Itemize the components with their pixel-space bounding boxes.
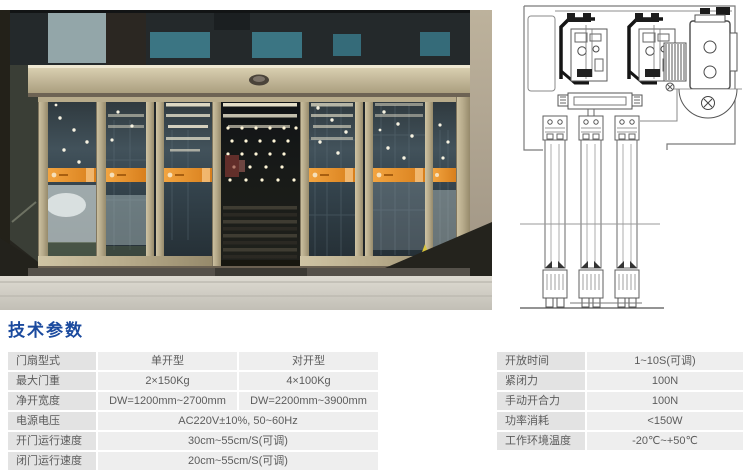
- spec-label: 工作环境温度: [497, 432, 585, 450]
- spec-value: 100N: [587, 372, 743, 390]
- spec-value: 100N: [587, 392, 743, 410]
- spec-value: 30cm~55cm/S(可调): [98, 432, 378, 450]
- spec-label: 最大门重: [8, 372, 96, 390]
- table-row: 开放时间 1~10S(可调): [497, 352, 743, 370]
- table-row: 手动开合力 100N: [497, 392, 743, 410]
- spec-label: 紧闭力: [497, 372, 585, 390]
- spec-value: DW=2200mm~3900mm: [239, 392, 378, 410]
- mechanism-diagram-svg: [514, 3, 746, 321]
- spec-label: 电源电压: [8, 412, 96, 430]
- door-profile-2: [579, 116, 603, 307]
- table-row: 工作环境温度 -20℃~+50℃: [497, 432, 743, 450]
- spec-value: 20cm~55cm/S(可调): [98, 452, 378, 470]
- spec-label: 功率消耗: [497, 412, 585, 430]
- table-row: 净开宽度 DW=1200mm~2700mm DW=2200mm~3900mm: [8, 392, 378, 410]
- floor-line: [520, 303, 664, 308]
- entrance-photo: [0, 10, 492, 310]
- spec-value: 对开型: [239, 352, 378, 370]
- spec-value: -20℃~+50℃: [587, 432, 743, 450]
- spec-label: 手动开合力: [497, 392, 585, 410]
- pavement: [0, 276, 492, 310]
- transom-glass: [10, 10, 470, 65]
- section-title: 技术参数: [8, 316, 84, 341]
- table-row: 最大门重 2×150Kg 4×100Kg: [8, 372, 378, 390]
- spec-label: 闭门运行速度: [8, 452, 96, 470]
- entrance-photo-svg: [0, 10, 492, 310]
- spec-value: 1~10S(可调): [587, 352, 743, 370]
- spec-table-right: 开放时间 1~10S(可调) 紧闭力 100N 手动开合力 100N 功率消耗 …: [497, 352, 743, 452]
- page: 技术参数 门扇型式 单开型 对开型 最大门重 2×150Kg 4×100Kg 净…: [0, 0, 746, 472]
- spec-label: 净开宽度: [8, 392, 96, 410]
- table-row: 电源电压 AC220V±10%, 50~60Hz: [8, 412, 378, 430]
- mechanism-diagram: [514, 3, 746, 321]
- table-row: 门扇型式 单开型 对开型: [8, 352, 378, 370]
- door-profile-1: [543, 116, 567, 307]
- spec-value: <150W: [587, 412, 743, 430]
- header-beam: [28, 65, 470, 97]
- spec-value: 单开型: [98, 352, 237, 370]
- table-row: 开门运行速度 30cm~55cm/S(可调): [8, 432, 378, 450]
- spec-value: DW=1200mm~2700mm: [98, 392, 237, 410]
- table-row: 闭门运行速度 20cm~55cm/S(可调): [8, 452, 378, 470]
- jamb-profile: [528, 16, 555, 91]
- open-doorway: [221, 98, 300, 268]
- spec-label: 门扇型式: [8, 352, 96, 370]
- table-row: 功率消耗 <150W: [497, 412, 743, 430]
- spec-table-left: 门扇型式 单开型 对开型 最大门重 2×150Kg 4×100Kg 净开宽度 D…: [8, 352, 378, 472]
- spec-label: 开放时间: [497, 352, 585, 370]
- spec-label: 开门运行速度: [8, 432, 96, 450]
- door-profile-3: [615, 116, 639, 307]
- table-row: 紧闭力 100N: [497, 372, 743, 390]
- spec-value: 4×100Kg: [239, 372, 378, 390]
- roller-carriage-1: [561, 13, 607, 83]
- spec-value: 2×150Kg: [98, 372, 237, 390]
- spec-value: AC220V±10%, 50~60Hz: [98, 412, 378, 430]
- drive-motor: [664, 7, 742, 118]
